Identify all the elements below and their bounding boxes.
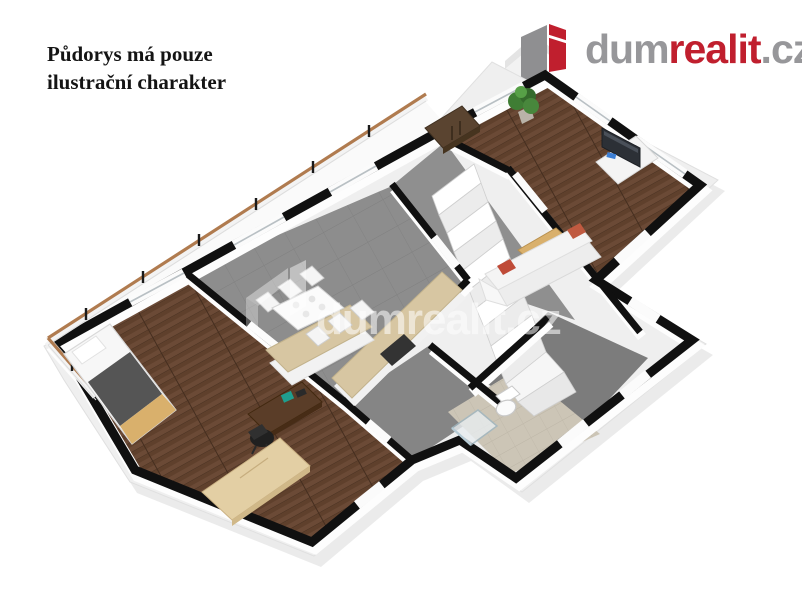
floorplan-screenshot: Půdorys má pouze ilustrační charakter du… — [0, 0, 802, 600]
floorplan-render: dumrealit.cz — [0, 0, 802, 600]
watermark-text: dumrealit.cz — [316, 295, 561, 344]
